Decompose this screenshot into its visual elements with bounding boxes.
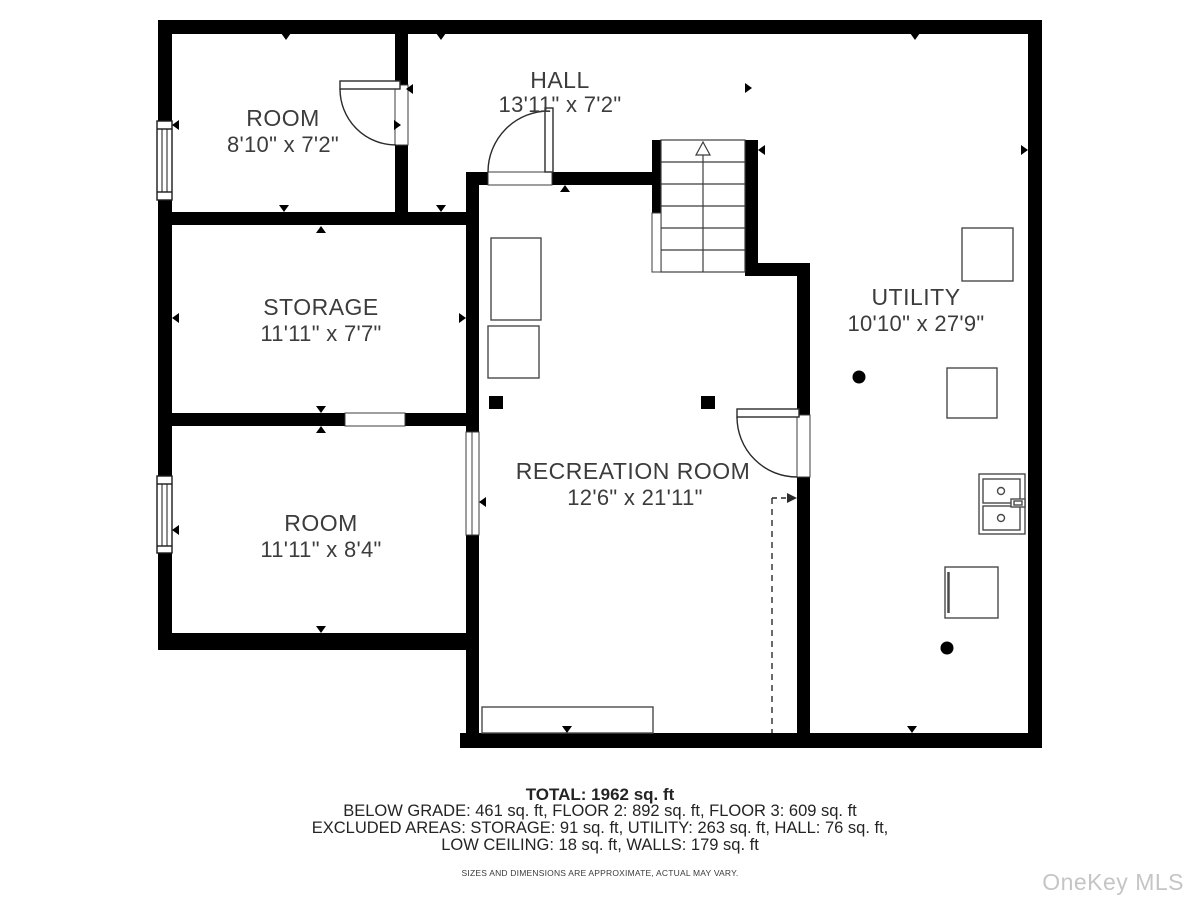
door-opening (488, 172, 552, 185)
room-label: STORAGE (263, 294, 379, 320)
tick-marker (316, 626, 326, 633)
wall-segment (158, 413, 345, 426)
wall-segment (466, 535, 479, 748)
room-dims: 13'11" x 7'2" (499, 92, 622, 117)
wall-segment (466, 172, 488, 185)
excluded-areas-text-2: LOW CEILING: 18 sq. ft, WALLS: 179 sq. f… (0, 837, 1200, 854)
tick-marker (172, 525, 179, 535)
door-leaf (737, 409, 799, 417)
total-area-text: TOTAL: 1962 sq. ft (0, 786, 1200, 803)
tick-marker (907, 726, 917, 733)
appliance-box (945, 567, 998, 618)
cabinet (491, 238, 541, 320)
staircase (652, 140, 745, 272)
appliance-box (947, 368, 997, 418)
wall-segment (395, 145, 408, 212)
tick-marker (316, 226, 326, 233)
window-icon (157, 476, 172, 553)
tick-marker (172, 313, 179, 323)
low-ceiling-boundary (772, 493, 797, 733)
tick-marker (745, 83, 752, 93)
floor-drain (853, 371, 866, 384)
tick-marker (316, 406, 326, 413)
window-icon (157, 121, 172, 200)
wall-segment (158, 20, 172, 650)
floor-areas-text: BELOW GRADE: 461 sq. ft, FLOOR 2: 892 sq… (0, 803, 1200, 820)
tick-marker (1021, 145, 1028, 155)
wall-segment (466, 172, 479, 432)
floor-plan-svg: ROOM 8'10" x 7'2" HALL 13'11" x 7'2" STO… (0, 0, 1200, 900)
door-leaf (545, 108, 553, 172)
floor-plan: ROOM 8'10" x 7'2" HALL 13'11" x 7'2" STO… (0, 0, 1200, 900)
tick-marker (172, 120, 179, 130)
wall-segment (395, 20, 408, 85)
room-label: ROOM (284, 510, 358, 536)
wall-segment (652, 140, 661, 213)
watermark: OneKey MLS (1042, 869, 1184, 896)
room-dims: 10'10" x 27'9" (847, 311, 984, 336)
tick-marker (436, 205, 446, 212)
tick-marker (279, 205, 289, 212)
tick-marker (560, 185, 570, 192)
tick-marker (316, 426, 326, 433)
door-arc (340, 89, 396, 145)
floor-drain (941, 642, 954, 655)
appliance-box (962, 228, 1013, 281)
room-label: ROOM (246, 105, 320, 131)
room-dims: 12'6" x 21'11" (567, 485, 702, 510)
stair-up-arrow-icon (696, 142, 710, 155)
tick-marker (281, 33, 291, 40)
wall-segment (158, 212, 479, 225)
support-post (701, 396, 715, 409)
wall-segment (158, 633, 479, 650)
stair-rail (652, 213, 661, 272)
tick-marker (910, 33, 920, 40)
tick-marker (436, 33, 446, 40)
passage-opening (345, 413, 405, 426)
room-dims: 11'11" x 7'7" (260, 321, 381, 346)
arrow-icon (787, 493, 797, 503)
wall-segment (745, 140, 758, 263)
door-opening (797, 415, 810, 477)
laundry-sink-icon (979, 474, 1025, 534)
cabinet (488, 326, 539, 378)
room-dims: 11'11" x 8'4" (260, 537, 381, 562)
door-leaf (340, 81, 400, 89)
door-arc (488, 111, 549, 172)
wall-segment (797, 276, 810, 415)
room-dims: 8'10" x 7'2" (227, 132, 339, 157)
room-label: HALL (530, 67, 590, 93)
support-post (489, 396, 503, 409)
tick-marker (479, 497, 486, 507)
room-labels: ROOM 8'10" x 7'2" HALL 13'11" x 7'2" STO… (227, 67, 985, 562)
tick-marker (459, 313, 466, 323)
wall-segment (745, 263, 810, 276)
door-opening (395, 85, 408, 145)
wall-segment (158, 20, 1042, 34)
excluded-areas-text: EXCLUDED AREAS: STORAGE: 91 sq. ft, UTIL… (0, 820, 1200, 837)
room-label: RECREATION ROOM (516, 458, 751, 484)
wall-segment (552, 172, 655, 185)
disclaimer-text: SIZES AND DIMENSIONS ARE APPROXIMATE, AC… (0, 868, 1200, 878)
wall-segment (1028, 20, 1042, 748)
area-summary: TOTAL: 1962 sq. ft BELOW GRADE: 461 sq. … (0, 786, 1200, 878)
wall-segment (797, 477, 810, 733)
wall-segment (460, 733, 1042, 748)
tick-marker (758, 145, 765, 155)
room-label: UTILITY (871, 284, 960, 310)
